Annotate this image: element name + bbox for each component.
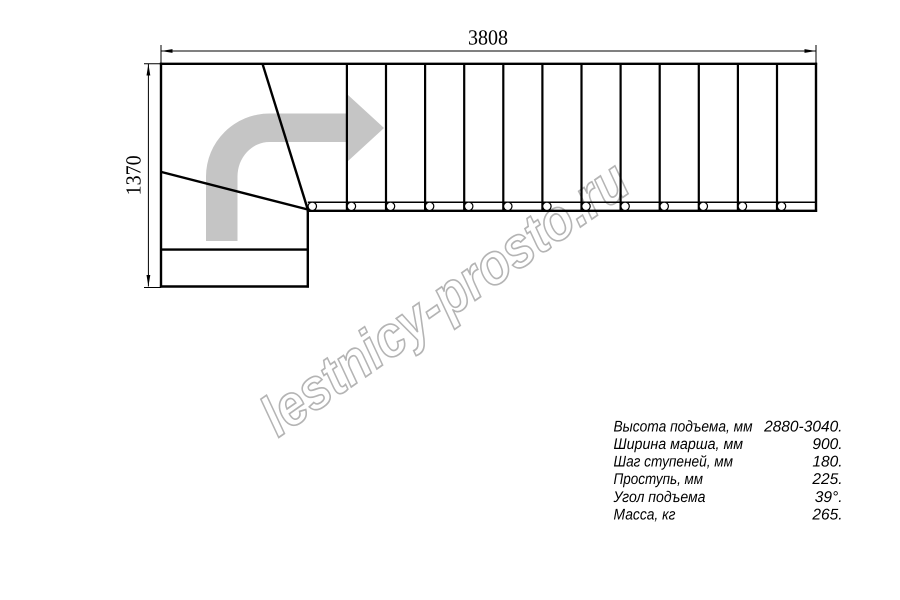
- svg-text:Проступь, мм: Проступь, мм: [614, 471, 704, 488]
- svg-text:225.: 225.: [811, 471, 842, 488]
- svg-text:180.: 180.: [812, 454, 842, 471]
- svg-text:39°.: 39°.: [815, 489, 843, 506]
- svg-text:Высота подъема, мм: Высота подъема, мм: [614, 418, 753, 435]
- svg-text:265.: 265.: [811, 506, 842, 523]
- svg-text:Ширина марша, мм: Ширина марша, мм: [614, 436, 744, 453]
- svg-text:1370: 1370: [121, 155, 145, 195]
- svg-text:Шаг ступеней, мм: Шаг ступеней, мм: [614, 454, 734, 471]
- svg-text:2880-3040.: 2880-3040.: [763, 418, 842, 435]
- svg-text:Угол подъема: Угол подъема: [613, 489, 706, 506]
- svg-text:900.: 900.: [812, 436, 842, 453]
- svg-text:Масса, кг: Масса, кг: [614, 506, 676, 523]
- svg-text:3808: 3808: [468, 25, 508, 49]
